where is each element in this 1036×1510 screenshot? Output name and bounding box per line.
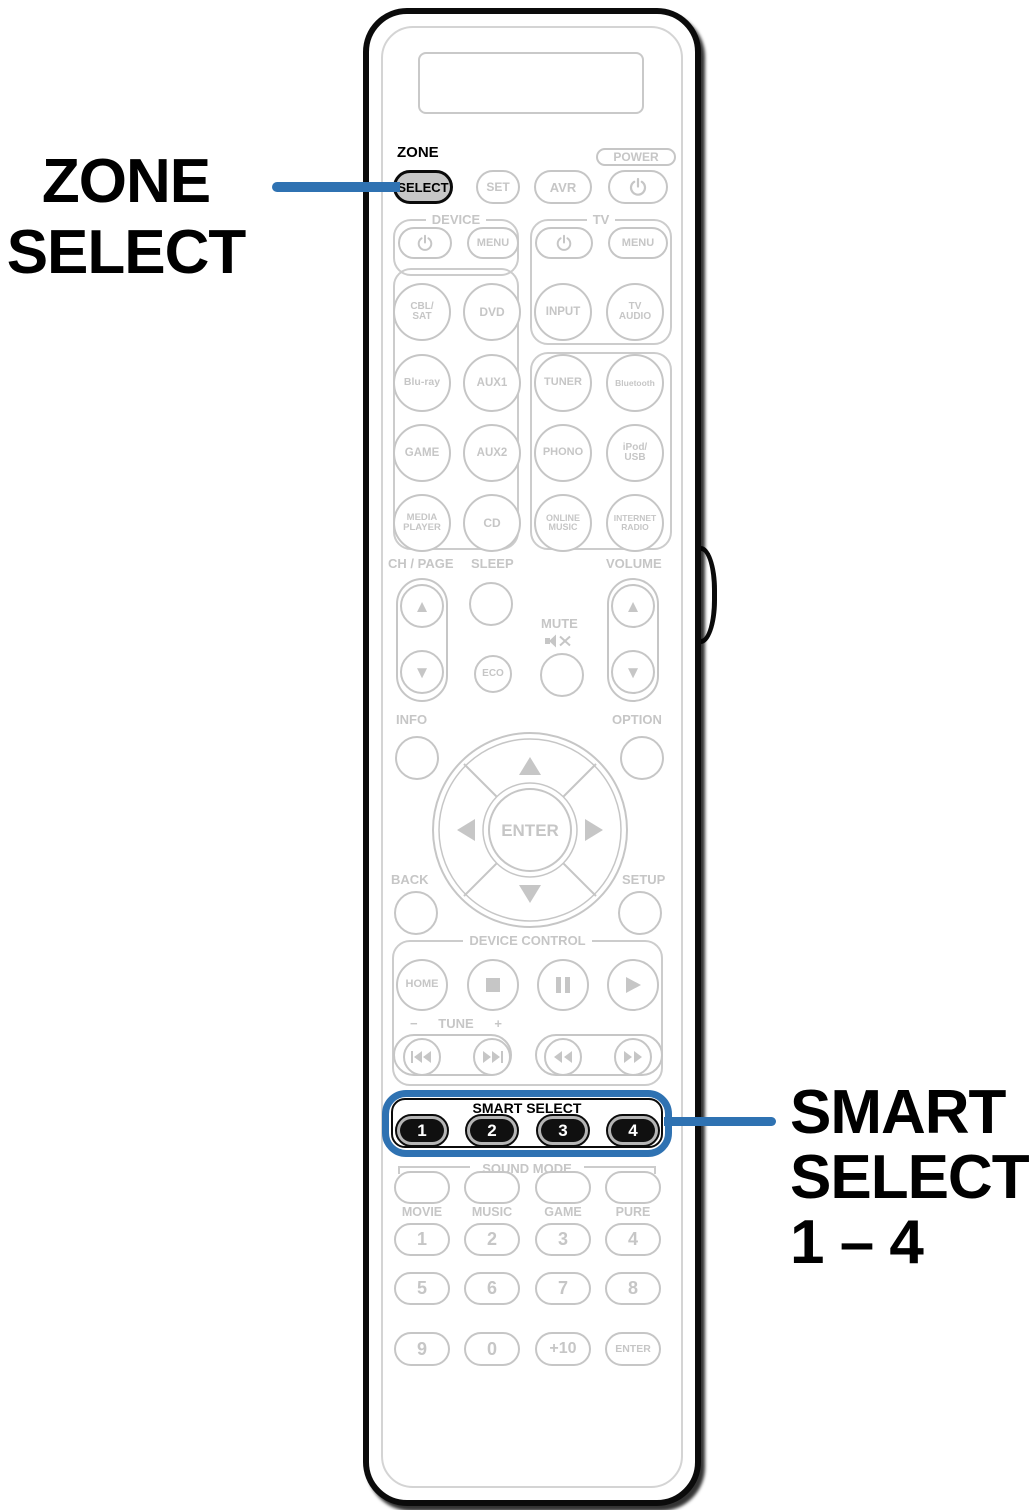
device-group-label: DEVICE — [426, 212, 486, 227]
tv-power-button[interactable] — [535, 227, 593, 259]
smart-select-2-button[interactable]: 2 — [465, 1114, 519, 1147]
number-9-button[interactable]: 9 — [394, 1332, 450, 1366]
sleep-label: SLEEP — [471, 556, 514, 571]
remote-control-body: ZONE SELECT SET AVR POWER DEVICE MENU TV — [363, 8, 701, 1506]
ch-page-up-button[interactable]: ▲ — [400, 584, 444, 628]
mute-button[interactable] — [540, 653, 584, 697]
power-icon — [416, 234, 434, 252]
device-power-button[interactable] — [398, 227, 452, 259]
number-6-button[interactable]: 6 — [464, 1272, 520, 1305]
smart-select-callout-line1: SMART — [790, 1080, 1029, 1145]
number-8-button[interactable]: 8 — [605, 1272, 661, 1305]
home-button[interactable]: HOME — [396, 959, 448, 1011]
manual-remote-diagram: ZONE SELECT SET AVR POWER DEVICE MENU TV — [0, 0, 1036, 1510]
power-group-label: POWER — [596, 148, 676, 166]
tuner-button[interactable]: TUNER — [534, 354, 592, 412]
volume-down-button[interactable]: ▼ — [611, 650, 655, 694]
smart-select-callout-line3: 1 – 4 — [790, 1210, 1029, 1275]
set-button[interactable]: SET — [476, 170, 520, 204]
sound-mode-music-button[interactable] — [464, 1171, 520, 1204]
phono-button[interactable]: PHONO — [534, 424, 592, 482]
up-arrow-icon: ▲ — [625, 598, 642, 615]
zone-group-label: ZONE — [397, 144, 439, 161]
sleep-button[interactable] — [469, 582, 513, 626]
smart-select-connector-line — [664, 1117, 776, 1126]
zone-select-callout-line1: ZONE — [0, 146, 252, 217]
tv-audio-button[interactable]: TV AUDIO — [606, 283, 664, 341]
power-icon — [628, 177, 648, 197]
music-label: MUSIC — [457, 1205, 527, 1219]
mute-label: MUTE — [541, 616, 578, 631]
setup-button[interactable] — [618, 891, 662, 935]
play-button[interactable] — [607, 959, 659, 1011]
enter-button[interactable]: ENTER — [501, 821, 559, 840]
tune-label: TUNE — [438, 1016, 473, 1031]
ch-page-down-button[interactable]: ▼ — [400, 650, 444, 694]
pause-button[interactable] — [537, 959, 589, 1011]
skip-forward-button[interactable] — [473, 1038, 511, 1076]
number-1-button[interactable]: 1 — [394, 1223, 450, 1256]
volume-label: VOLUME — [606, 556, 662, 571]
cursor-pad[interactable]: ENTER — [425, 725, 635, 935]
dvd-button[interactable]: DVD — [463, 283, 521, 341]
zone-select-connector-line — [272, 182, 400, 192]
numpad-enter-button[interactable]: ENTER — [605, 1332, 661, 1366]
smart-select-4-button[interactable]: 4 — [606, 1114, 660, 1147]
smart-select-callout: SMART SELECT 1 – 4 — [790, 1080, 1029, 1275]
avr-button[interactable]: AVR — [534, 170, 592, 204]
game-label: GAME — [528, 1205, 598, 1219]
stop-icon — [485, 977, 501, 993]
skip-forward-icon — [480, 1050, 504, 1064]
mute-icon — [544, 631, 574, 651]
device-control-label: DEVICE CONTROL — [463, 933, 591, 948]
online-music-button[interactable]: ONLINE MUSIC — [534, 494, 592, 552]
rewind-icon — [552, 1050, 574, 1064]
ipod-usb-button[interactable]: iPod/ USB — [606, 424, 664, 482]
number-5-button[interactable]: 5 — [394, 1272, 450, 1305]
back-label: BACK — [391, 872, 429, 887]
movie-label: MOVIE — [387, 1205, 457, 1219]
number-0-button[interactable]: 0 — [464, 1332, 520, 1366]
stop-button[interactable] — [467, 959, 519, 1011]
tv-group-label: TV — [587, 212, 616, 227]
smart-select-highlight: SMART SELECT 1 2 3 4 — [382, 1090, 672, 1157]
info-label: INFO — [396, 712, 427, 727]
tune-row: − TUNE + — [410, 1016, 502, 1031]
smart-select-1-button[interactable]: 1 — [395, 1114, 449, 1147]
back-button[interactable] — [394, 891, 438, 935]
sound-mode-game-button[interactable] — [535, 1171, 591, 1204]
skip-back-button[interactable] — [403, 1038, 441, 1076]
fast-forward-icon — [622, 1050, 644, 1064]
eco-button[interactable]: ECO — [474, 655, 512, 693]
fast-forward-button[interactable] — [614, 1038, 652, 1076]
cd-button[interactable]: CD — [463, 494, 521, 552]
number-4-button[interactable]: 4 — [605, 1223, 661, 1256]
setup-label: SETUP — [622, 872, 665, 887]
power-icon — [555, 234, 573, 252]
internet-radio-button[interactable]: INTERNET RADIO — [606, 494, 664, 552]
zone-select-callout: ZONE SELECT — [0, 146, 252, 288]
ch-page-label: CH / PAGE — [388, 556, 454, 571]
down-arrow-icon: ▼ — [625, 664, 642, 681]
skip-back-icon — [410, 1050, 434, 1064]
plus-10-button[interactable]: +10 — [535, 1332, 591, 1366]
power-button[interactable] — [608, 170, 668, 204]
bluetooth-button[interactable]: Bluetooth — [606, 354, 664, 412]
tune-plus-label: + — [494, 1016, 502, 1031]
rewind-button[interactable] — [544, 1038, 582, 1076]
smart-select-3-button[interactable]: 3 — [536, 1114, 590, 1147]
cbl-sat-button[interactable]: CBL/ SAT — [393, 283, 451, 341]
zone-select-callout-line2: SELECT — [0, 217, 252, 288]
pause-icon — [555, 976, 571, 994]
smart-select-callout-line2: SELECT — [790, 1145, 1029, 1210]
blu-ray-button[interactable]: Blu-ray — [393, 354, 451, 412]
up-arrow-icon: ▲ — [414, 598, 431, 615]
number-2-button[interactable]: 2 — [464, 1223, 520, 1256]
pure-label: PURE — [598, 1205, 668, 1219]
volume-up-button[interactable]: ▲ — [611, 584, 655, 628]
aux2-button[interactable]: AUX2 — [463, 424, 521, 482]
game-source-button[interactable]: GAME — [393, 424, 451, 482]
input-button[interactable]: INPUT — [534, 283, 592, 341]
aux1-button[interactable]: AUX1 — [463, 354, 521, 412]
number-7-button[interactable]: 7 — [535, 1272, 591, 1305]
play-icon — [624, 976, 642, 994]
number-3-button[interactable]: 3 — [535, 1223, 591, 1256]
media-player-button[interactable]: MEDIA PLAYER — [393, 494, 451, 552]
tv-menu-button[interactable]: MENU — [608, 227, 668, 259]
tune-minus-label: − — [410, 1016, 418, 1031]
remote-display-window — [418, 52, 644, 114]
device-menu-button[interactable]: MENU — [467, 227, 519, 259]
down-arrow-icon: ▼ — [414, 664, 431, 681]
sound-mode-pure-button[interactable] — [605, 1171, 661, 1204]
zone-select-button[interactable]: SELECT — [393, 170, 453, 204]
sound-mode-movie-button[interactable] — [394, 1171, 450, 1204]
